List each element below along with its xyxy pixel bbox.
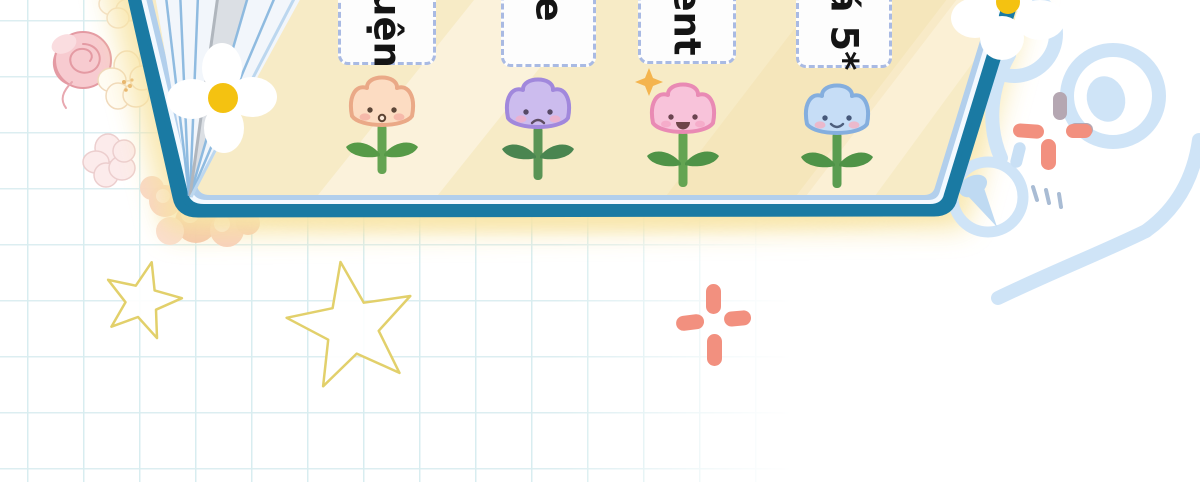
cta-card-4-label: á 5* [823, 0, 866, 70]
illustration-stage: uện e ent á 5* [0, 0, 1200, 482]
rose-icon [48, 30, 111, 108]
blossom-icon [83, 134, 135, 187]
cta-card-2-label: e [527, 0, 570, 22]
surprised-mouth [379, 115, 385, 121]
sparkle-plus-icon [1009, 92, 1093, 170]
sparkle-plus-icon [675, 284, 751, 366]
cta-card-4: á 5* [796, 0, 892, 68]
cta-card-1-label: uện [366, 0, 409, 68]
cta-card-3-label: ent [666, 0, 709, 56]
artwork-svg [0, 0, 1200, 482]
cta-card-2: e [501, 0, 596, 67]
bear-mouth-stitches [1033, 187, 1061, 207]
cta-card-1: uện [338, 0, 436, 65]
star-outline-icon [108, 262, 410, 386]
cta-card-3: ent [638, 0, 736, 64]
